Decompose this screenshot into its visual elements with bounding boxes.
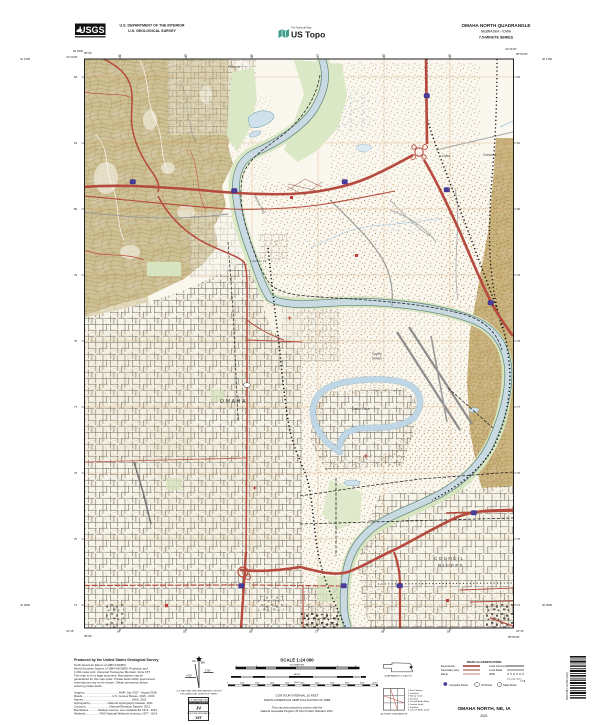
svg-text:Expressway: Expressway [441, 664, 456, 668]
svg-text:59: 59 [448, 54, 452, 58]
svg-text:41°15': 41°15' [66, 629, 74, 633]
svg-text:Eppley: Eppley [372, 352, 382, 356]
svg-text:56: 56 [250, 54, 254, 58]
svg-text:3 Honey Creek: 3 Honey Creek [408, 695, 423, 698]
svg-text:4 Irvington: 4 Irvington [408, 697, 419, 700]
svg-text:8 Council Bluffs South: 8 Council Bluffs South [408, 709, 430, 712]
svg-text:74: 74 [517, 603, 521, 607]
svg-text:GRID ZONE DESIGNATION: GRID ZONE DESIGNATION [187, 712, 210, 715]
svg-text:State Route: State Route [503, 683, 517, 687]
svg-text:81: 81 [74, 141, 78, 145]
svg-text:4000: 4000 [285, 683, 289, 685]
svg-text:QUADRANGLE LOCATION: QUADRANGLE LOCATION [385, 675, 412, 678]
svg-text:U.S. NATIONAL GRID: U.S. NATIONAL GRID [189, 699, 209, 702]
svg-text:80: 80 [74, 207, 78, 211]
svg-text:79: 79 [517, 273, 521, 277]
svg-text:Crescent: Crescent [483, 153, 496, 157]
svg-text:ISBN 978-1-6-7357-310-5: ISBN 978-1-6-7357-310-5 [566, 672, 569, 700]
svg-text:0: 0 [227, 683, 228, 685]
svg-text:Airfield: Airfield [372, 357, 382, 361]
svg-text:7000: 7000 [330, 683, 334, 685]
svg-text:MILES: MILES [294, 674, 301, 676]
svg-text:77: 77 [74, 405, 78, 409]
svg-text:41 4750: 41 4750 [20, 57, 31, 61]
svg-text:1°58': 1°58' [205, 670, 211, 673]
svg-text:15T: 15T [195, 716, 202, 720]
svg-text:79: 79 [74, 273, 78, 277]
svg-text:75: 75 [74, 537, 78, 541]
svg-text:1000: 1000 [240, 683, 244, 685]
svg-text:Freedom Pk: Freedom Pk [250, 259, 267, 263]
svg-text:ROAD CLASSIFICATION: ROAD CLASSIFICATION [467, 660, 502, 664]
svg-text:100,000-m SQUARE ID: 100,000-m SQUARE ID [189, 702, 209, 705]
svg-text:Carter Lake: Carter Lake [352, 407, 370, 411]
svg-text:JV: JV [196, 706, 201, 711]
svg-text:46 4500: 46 4500 [73, 49, 84, 53]
svg-text:Wetlands..................FWS: Wetlands..................FWS National W… [74, 712, 158, 716]
svg-text:4°16': 4°16' [187, 675, 193, 678]
svg-text:41°22'30": 41°22'30" [66, 55, 78, 59]
svg-text:58: 58 [381, 630, 385, 634]
svg-text:55: 55 [183, 630, 187, 634]
svg-text:one-way street: one-way street [507, 678, 522, 681]
svg-text:U.S. GEOLOGICAL SURVEY: U.S. GEOLOGICAL SURVEY [128, 29, 176, 33]
svg-text:5000: 5000 [300, 683, 304, 685]
svg-text:Secondary Hwy: Secondary Hwy [441, 668, 460, 672]
svg-text:COUNCIL: COUNCIL [434, 556, 464, 561]
svg-text:Clara: Clara [442, 154, 450, 158]
svg-text:80: 80 [517, 207, 521, 211]
svg-text:77: 77 [517, 405, 521, 409]
svg-text:U.S. DEPARTMENT OF THE INTERIO: U.S. DEPARTMENT OF THE INTERIOR [119, 24, 184, 28]
svg-text:54: 54 [117, 630, 121, 634]
svg-text:59: 59 [447, 630, 451, 634]
svg-text:76: 76 [74, 471, 78, 475]
svg-text:8000: 8000 [345, 683, 349, 685]
svg-text:2021: 2021 [480, 714, 488, 718]
svg-text:National Geospatial Program US: National Geospatial Program US Topo Prod… [261, 709, 334, 713]
svg-text:ADJOINING QUADRANGLES: ADJOINING QUADRANGLES [381, 713, 408, 716]
svg-text:U.S. NATIONAL GRID AND MAGNETI: U.S. NATIONAL GRID AND MAGNETIC NORTH [177, 690, 222, 693]
svg-text:46 4750: 46 4750 [542, 57, 553, 61]
svg-text:9000: 9000 [360, 683, 364, 685]
svg-text:55: 55 [184, 54, 188, 58]
svg-text:4WD: 4WD [489, 672, 495, 676]
svg-text:2 Loveland: 2 Loveland [408, 693, 419, 695]
svg-text:10000: 10000 [372, 683, 377, 685]
svg-text:OMAHA NORTH QUADRANGLE: OMAHA NORTH QUADRANGLE [462, 23, 531, 28]
svg-text:OMAHA: OMAHA [220, 399, 247, 405]
svg-text:Florence: Florence [228, 65, 241, 69]
svg-text:41 0000: 41 0000 [20, 603, 31, 607]
svg-text:96°00': 96°00' [84, 51, 92, 55]
svg-text:41°22'30": 41°22'30" [505, 47, 517, 51]
svg-text:BLUFFS: BLUFFS [438, 563, 464, 568]
svg-text:MN: MN [201, 661, 205, 665]
svg-text:96°00': 96°00' [84, 634, 92, 638]
svg-text:7 Papillion: 7 Papillion [408, 707, 419, 709]
svg-text:81: 81 [517, 141, 521, 145]
svg-text:7.5-MINUTE SERIES: 7.5-MINUTE SERIES [479, 36, 514, 40]
svg-text:78: 78 [74, 339, 78, 343]
svg-text:NEBRASKA - IOWA: NEBRASKA - IOWA [481, 30, 512, 34]
svg-text:75: 75 [517, 537, 521, 541]
svg-text:1 Fort Calhoun: 1 Fort Calhoun [408, 689, 423, 692]
svg-text:SCALE 1:24 000: SCALE 1:24 000 [280, 658, 314, 663]
svg-text:DECLINATION AT CENTER OF SHEET: DECLINATION AT CENTER OF SHEET [181, 692, 219, 695]
svg-text:56: 56 [249, 630, 253, 634]
svg-text:2000: 2000 [255, 683, 259, 685]
svg-text:76: 76 [517, 471, 521, 475]
svg-text:41°15': 41°15' [516, 629, 524, 633]
svg-text:78: 78 [517, 339, 521, 343]
svg-text:5 Council Bluffs North: 5 Council Bluffs North [408, 700, 430, 703]
svg-text:82: 82 [517, 75, 521, 79]
svg-text:57: 57 [315, 630, 319, 634]
svg-text:Local Connector: Local Connector [489, 664, 508, 668]
svg-text:Local Road: Local Road [489, 668, 503, 672]
svg-text:entering private lands.: entering private lands. [74, 684, 103, 688]
svg-text:Ramp: Ramp [441, 672, 448, 676]
svg-text:57: 57 [316, 54, 320, 58]
svg-text:95°52'30": 95°52'30" [508, 635, 520, 639]
svg-text:Produced by the United States: Produced by the United States Geological… [74, 658, 158, 662]
svg-text:NORTH AMERICAN VERTICAL DATUM: NORTH AMERICAN VERTICAL DATUM OF 1988 [264, 698, 331, 702]
svg-text:46 0000: 46 0000 [542, 603, 553, 607]
svg-text:6000: 6000 [315, 683, 319, 685]
svg-text:74: 74 [74, 603, 78, 607]
svg-text:Interstate Route: Interstate Route [450, 683, 469, 687]
svg-text:82: 82 [74, 75, 78, 79]
svg-text:95°52'30": 95°52'30" [516, 52, 528, 56]
svg-text:OMAHA NORTH, NE, IA: OMAHA NORTH, NE, IA [457, 706, 511, 712]
svg-text:CONTOUR INTERVAL 10 FEET: CONTOUR INTERVAL 10 FEET [276, 694, 319, 698]
svg-text:US Topo: US Topo [291, 30, 325, 40]
svg-text:6 Omaha South: 6 Omaha South [408, 703, 424, 706]
svg-text:54: 54 [118, 54, 122, 58]
svg-text:US Route: US Route [481, 683, 493, 687]
svg-text:This map was produced to confo: This map was produced to conform with th… [272, 706, 323, 710]
svg-text:USGS: USGS [79, 25, 105, 35]
svg-text:GN: GN [192, 660, 196, 663]
svg-text:3000: 3000 [270, 683, 274, 685]
svg-text:58: 58 [382, 54, 386, 58]
